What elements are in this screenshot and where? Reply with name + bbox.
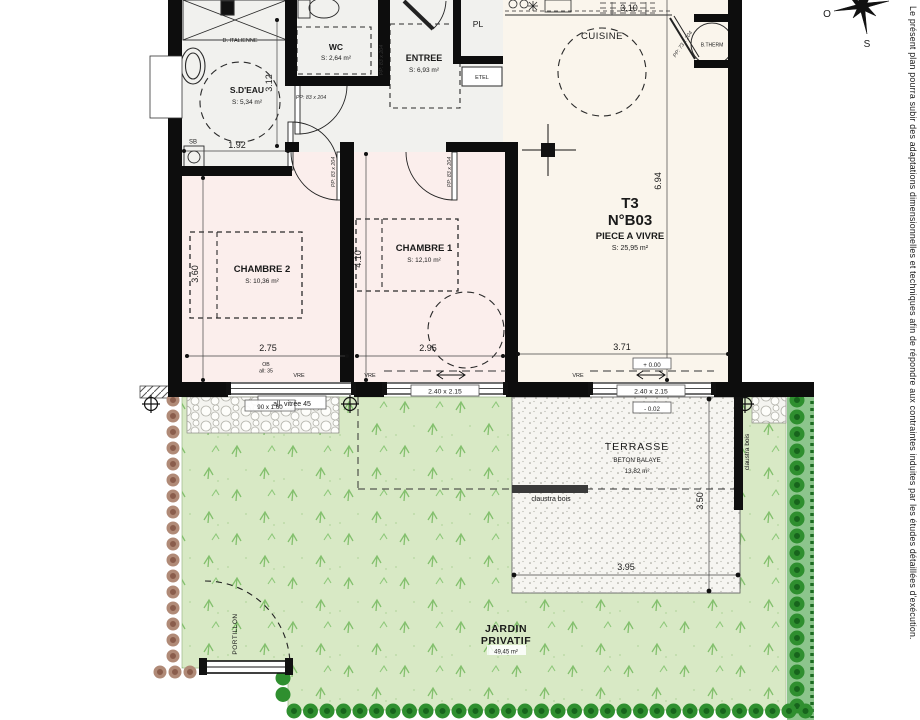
dim-3-95: 3.95 xyxy=(617,562,635,572)
window-ob: OB xyxy=(262,362,270,368)
jardin-name-1: JARDIN xyxy=(485,623,527,635)
terrasse-name: TERRASSE xyxy=(605,441,670,453)
compass-west: O xyxy=(823,9,831,20)
unit-room: PIECE A VIVRE xyxy=(596,231,664,242)
window-90x160: 90 x 1.60 xyxy=(257,404,283,411)
dim-2-95: 2.95 xyxy=(419,343,437,353)
dim-6-94: 6.94 xyxy=(653,172,663,190)
compass-rose: O S xyxy=(823,0,889,50)
terrace-side-wall xyxy=(734,396,743,510)
dim-3-10: 3.10 xyxy=(620,3,638,13)
window-all35: all: 35 xyxy=(259,369,273,375)
compass-south: S xyxy=(864,39,871,50)
room-sdeau-area: S: 5,34 m² xyxy=(232,99,263,106)
dim-2-75: 2.75 xyxy=(259,343,277,353)
floor-plan-drawing: S.D'EAU S: 5,34 m² WC S: 2,64 m² ENTREE … xyxy=(0,0,920,720)
fixture-btherm: B.THERM xyxy=(701,43,724,49)
floor-plan-page: S.D'EAU S: 5,34 m² WC S: 2,64 m² ENTREE … xyxy=(0,0,920,720)
room-cuisine-name: CUISINE xyxy=(581,31,623,42)
terrasse-area: 13,82 m² xyxy=(625,468,650,475)
jardin-area: 49,45 m² xyxy=(494,650,518,656)
portillon-label: PORTILLON xyxy=(232,613,239,654)
window-240x215-ch1: 2.40 x 2.15 xyxy=(428,389,462,396)
unit-area: S: 25,95 m² xyxy=(612,245,649,252)
door-pp83-entree: PP: 83 x 204 xyxy=(379,45,385,75)
door-pp83-chambre2: PP: 83 x 204 xyxy=(331,157,337,187)
dim-3-71: 3.71 xyxy=(613,342,631,352)
room-chambre1-name: CHAMBRE 1 xyxy=(396,243,453,254)
room-wc-name: WC xyxy=(329,42,343,52)
window-chambre2 xyxy=(226,382,356,395)
room-pl-name: PL xyxy=(473,19,484,29)
dim-4-10: 4.10 xyxy=(353,250,363,268)
unit-number: N°B03 xyxy=(608,212,652,229)
level-zero: + 0.00 xyxy=(643,362,661,369)
unit-type: T3 xyxy=(621,195,639,212)
claustra-bois-v: claustra bois xyxy=(744,433,751,470)
label-sb: SB xyxy=(189,140,197,146)
dim-3-12: 3.12 xyxy=(264,74,274,92)
room-wc-area: S: 2,64 m² xyxy=(321,55,352,62)
room-chambre1-area: S: 12,10 m² xyxy=(407,257,441,264)
door-pp83-wc: PP: 83 x 204 xyxy=(296,95,326,101)
dim-3-50: 3.50 xyxy=(695,492,705,510)
fixture-etel: ETEL xyxy=(475,75,489,81)
claustra-screen xyxy=(512,485,588,493)
window-240x215-sejour: 2.40 x 2.15 xyxy=(634,389,668,396)
claustra-bois-h: claustra bois xyxy=(531,496,571,503)
room-sdeau-name: S.D'EAU xyxy=(230,85,264,95)
duct-shaft xyxy=(150,56,182,118)
window-vre-2: VRE xyxy=(364,373,376,379)
jardin-name-2: PRIVATIF xyxy=(481,635,531,647)
terrasse-finish: BETON BALAYE xyxy=(613,457,660,464)
level-minus: - 0.02 xyxy=(644,406,660,413)
room-chambre2-name: CHAMBRE 2 xyxy=(234,264,290,275)
label-d-italienne: D. ITALIENNE xyxy=(222,38,257,44)
room-entree-name: ENTREE xyxy=(406,53,443,63)
disclaimer-text: Le présent plan pourra subir des adaptat… xyxy=(908,6,918,640)
room-entree-area: S: 6,93 m² xyxy=(409,67,440,74)
window-vre-1: VRE xyxy=(293,373,305,379)
dim-3-60: 3.60 xyxy=(190,265,200,283)
window-vre-3: VRE xyxy=(572,373,584,379)
door-pp83-chambre1: PP: 83 x 204 xyxy=(447,157,453,187)
disclaimer: Le présent plan pourra subir des adaptat… xyxy=(908,6,918,640)
room-chambre2-area: S: 10,36 m² xyxy=(245,278,279,285)
dim-1-92: 1.92 xyxy=(228,140,246,150)
